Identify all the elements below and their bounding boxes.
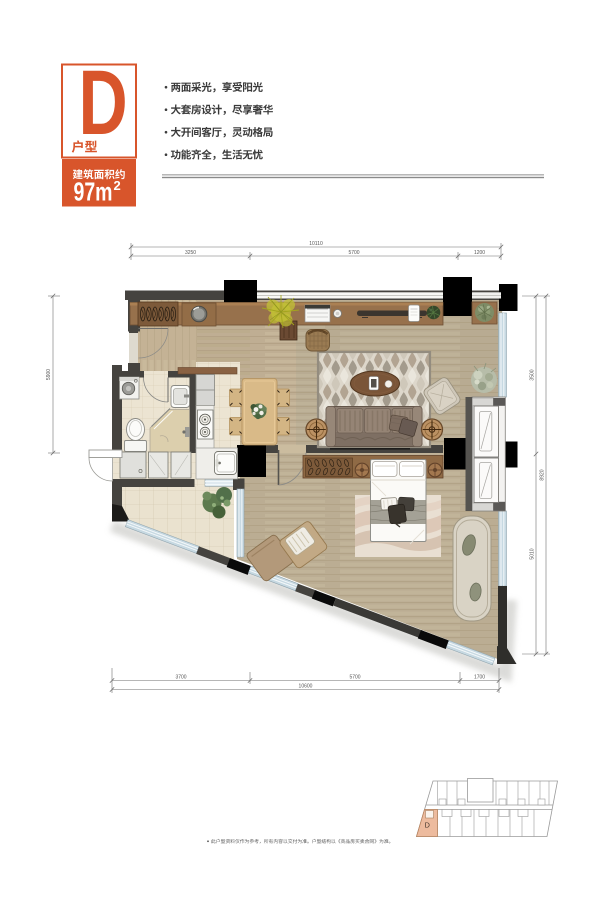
svg-text:2: 2 — [114, 178, 121, 193]
svg-text:5700: 5700 — [349, 675, 360, 681]
svg-text:8920: 8920 — [540, 469, 546, 480]
svg-text:3700: 3700 — [175, 675, 186, 681]
svg-text:97m: 97m — [74, 177, 113, 207]
svg-text:D: D — [425, 821, 431, 830]
svg-text:3500: 3500 — [530, 369, 536, 380]
svg-text:5700: 5700 — [348, 250, 359, 256]
svg-text:10600: 10600 — [299, 684, 313, 690]
svg-text:5010: 5010 — [530, 548, 536, 559]
svg-text:3250: 3250 — [185, 250, 196, 256]
svg-text:10110: 10110 — [309, 241, 323, 247]
svg-text:1200: 1200 — [474, 250, 485, 256]
svg-text:1700: 1700 — [474, 675, 485, 681]
svg-text:5900: 5900 — [46, 369, 52, 380]
